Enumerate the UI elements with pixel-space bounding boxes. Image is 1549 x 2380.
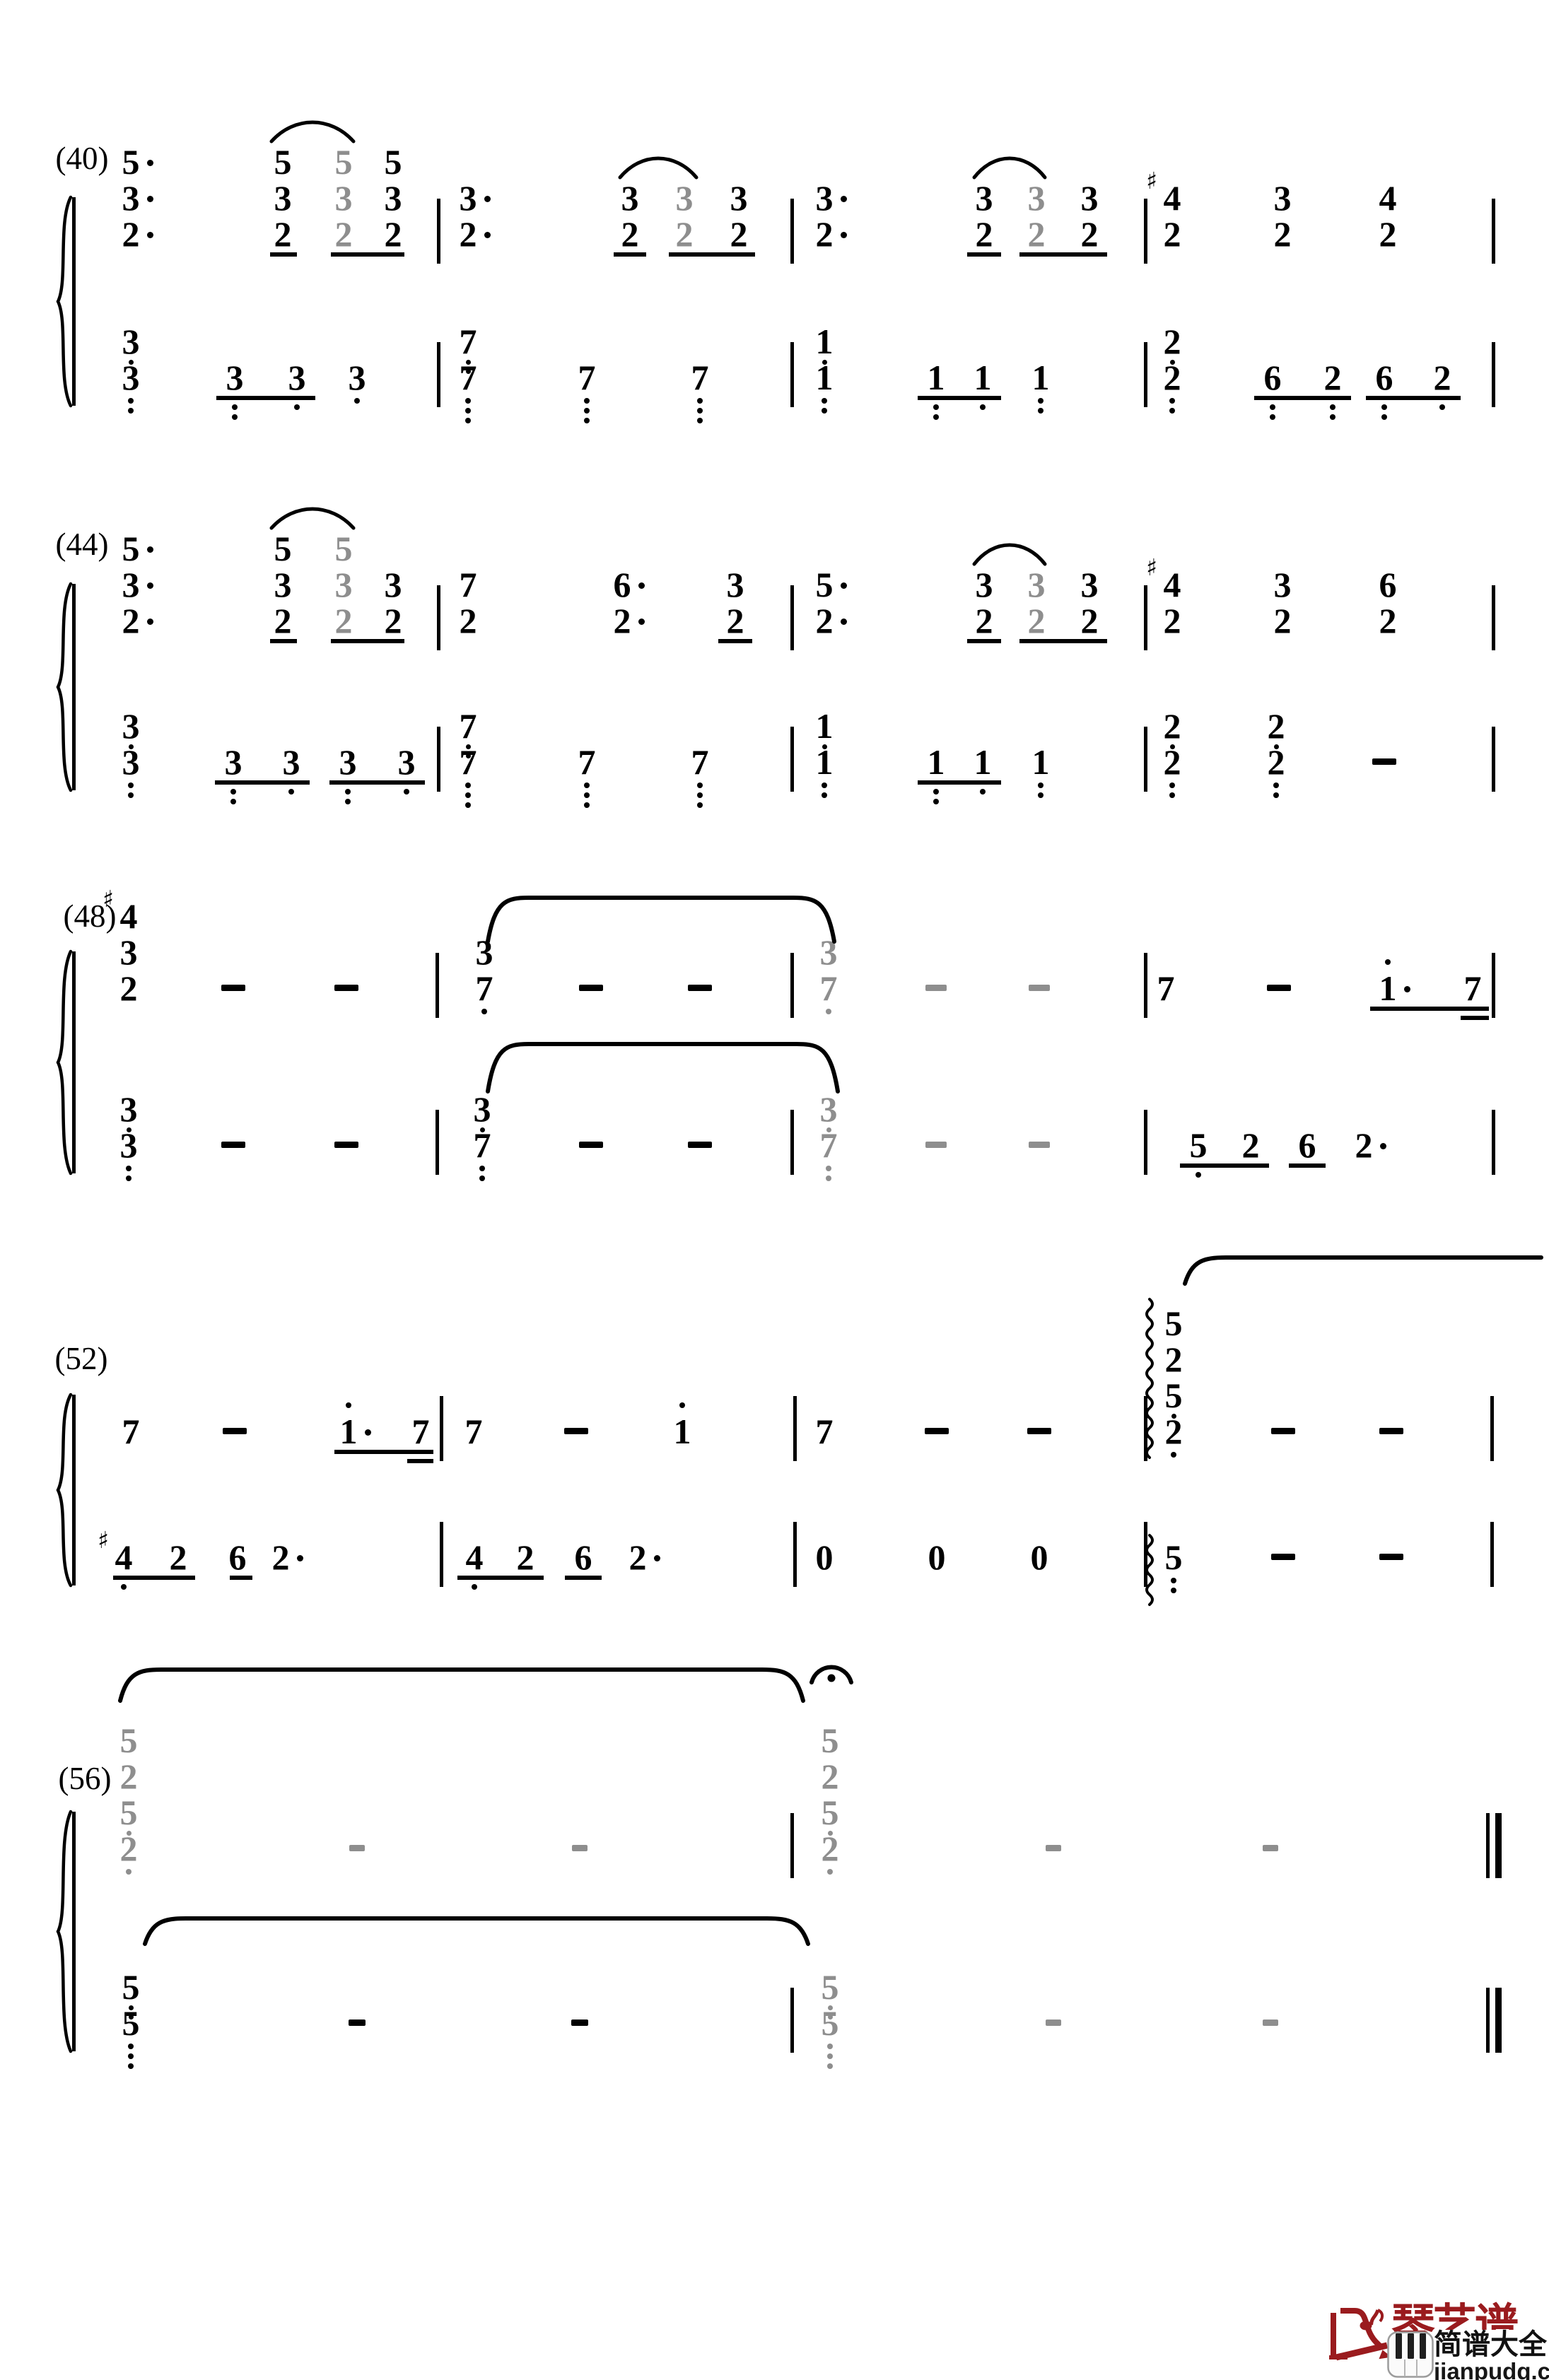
- held-note-dash: [349, 1845, 365, 1851]
- octave-dot: [841, 582, 847, 589]
- octave-dot: [827, 1869, 833, 1875]
- note-digit: 3: [318, 741, 378, 783]
- note-digit: 2: [1007, 599, 1066, 642]
- octave-dot: [147, 232, 153, 238]
- note-digit: 1: [1011, 356, 1070, 399]
- octave-dot: [1171, 1578, 1176, 1583]
- note-digit: 0: [795, 1536, 854, 1578]
- octave-dot: [1038, 408, 1044, 414]
- note-digit: 1: [953, 741, 1012, 783]
- octave-dot: [1330, 414, 1335, 420]
- octave-dot: [1381, 404, 1387, 410]
- final-barline: [1492, 727, 1495, 792]
- octave-dot: [128, 398, 134, 404]
- octave-dot: [1385, 959, 1391, 965]
- note-digit: 2: [253, 213, 312, 255]
- note-digit: 2: [954, 213, 1014, 255]
- note-digit: 2: [1413, 356, 1472, 399]
- note-digit: 2: [99, 1827, 158, 1870]
- held-note-dash: [688, 1142, 712, 1148]
- octave-dot: [1038, 398, 1044, 404]
- octave-dot: [479, 1166, 485, 1171]
- octave-dot: [1171, 1588, 1176, 1593]
- octave-dot: [230, 789, 236, 795]
- octave-dot: [288, 789, 294, 795]
- held-note-dash: [334, 985, 358, 991]
- note-digit: 2: [1253, 599, 1312, 642]
- octave-dot: [472, 1584, 477, 1590]
- held-note-dash: [564, 1428, 588, 1434]
- note-digit: 2: [1358, 599, 1418, 642]
- octave-dot: [584, 398, 590, 404]
- octave-dot: [128, 2044, 134, 2049]
- held-note-dash: [1029, 1142, 1050, 1148]
- note-digit: 2: [600, 213, 660, 255]
- held-note-dash: [1027, 1428, 1051, 1434]
- octave-dot: [128, 792, 134, 798]
- note-digit: 6: [1355, 356, 1414, 399]
- octave-dot: [1381, 414, 1387, 420]
- barline: [1144, 1110, 1147, 1175]
- octave-dot: [1439, 404, 1445, 410]
- octave-dot: [147, 546, 153, 553]
- held-note-dash: [1271, 1554, 1295, 1560]
- held-note-dash: [1379, 1428, 1403, 1434]
- octave-dot: [345, 799, 351, 804]
- octave-dot: [933, 789, 939, 795]
- note-digit: 2: [1246, 741, 1306, 783]
- note-digit: 2: [706, 599, 765, 642]
- barline: [436, 1110, 439, 1175]
- octave-dot: [1171, 1452, 1176, 1458]
- sharp-accidental: ♯: [1141, 553, 1162, 582]
- note-digit: 2: [363, 213, 423, 255]
- octave-dot: [404, 789, 409, 795]
- final-barline: [1490, 1522, 1494, 1587]
- barline: [790, 199, 794, 264]
- octave-dot: [1330, 404, 1335, 410]
- sixteenth-beam: [1461, 1016, 1489, 1020]
- barline: [790, 585, 794, 650]
- octave-dot: [465, 792, 471, 798]
- note-digit: 2: [1221, 1124, 1280, 1166]
- sixteenth-beam: [407, 1459, 433, 1463]
- octave-dot: [697, 408, 703, 414]
- system-start-line: [72, 1812, 76, 2051]
- held-note-dash: [1372, 758, 1396, 765]
- note-digit: 2: [1142, 213, 1202, 255]
- octave-dot: [822, 792, 827, 798]
- system-start-line: [72, 197, 76, 406]
- note-digit: 5: [800, 2002, 860, 2044]
- octave-dot: [980, 404, 986, 410]
- octave-dot: [346, 1402, 351, 1408]
- barline: [790, 342, 794, 407]
- held-note-dash: [925, 1142, 947, 1148]
- note-digit: 7: [670, 741, 730, 783]
- octave-dot: [465, 418, 471, 423]
- octave-dot: [826, 1166, 831, 1171]
- note-digit: 6: [554, 1536, 613, 1578]
- sharp-accidental: ♯: [93, 1526, 114, 1554]
- octave-dot: [584, 418, 590, 423]
- octave-dot: [827, 2053, 833, 2059]
- final-barline: [1490, 1396, 1494, 1461]
- note-digit: 1: [1011, 741, 1070, 783]
- octave-dot: [1270, 404, 1275, 410]
- octave-dot: [827, 2044, 833, 2049]
- octave-dot: [147, 619, 153, 625]
- piano-keys-icon: [1387, 2331, 1434, 2378]
- held-note-dash: [334, 1142, 358, 1148]
- octave-dot: [121, 1584, 127, 1590]
- held-note-dash: [572, 1845, 588, 1851]
- note-digit: 7: [1443, 967, 1502, 1009]
- octave-dot: [697, 782, 703, 788]
- octave-dot: [481, 1009, 487, 1014]
- note-digit: 7: [1136, 967, 1196, 1009]
- octave-dot: [584, 408, 590, 414]
- octave-dot: [1273, 792, 1279, 798]
- barline: [436, 953, 439, 1018]
- note-digit: 2: [253, 599, 312, 642]
- note-digit: 3: [101, 741, 160, 783]
- system-start-line: [72, 951, 76, 1173]
- note-digit: 2: [99, 967, 158, 1009]
- note-digit: 3: [267, 356, 327, 399]
- note-digit: 7: [670, 356, 730, 399]
- note-digit: 7: [557, 356, 616, 399]
- octave-dot: [479, 1176, 485, 1181]
- octave-dot: [584, 802, 590, 808]
- note-digit: 2: [148, 1536, 208, 1578]
- octave-dot: [147, 582, 153, 589]
- octave-dot: [654, 1555, 660, 1561]
- held-note-dash: [1271, 1428, 1295, 1434]
- note-digit: 3: [205, 356, 264, 399]
- held-note-dash: [221, 1142, 245, 1148]
- held-note-dash: [1263, 2020, 1278, 2026]
- octave-dot: [294, 404, 300, 410]
- note-digit: 7: [795, 1410, 854, 1453]
- octave-dot: [584, 782, 590, 788]
- octave-dot: [1380, 1143, 1386, 1149]
- octave-dot: [126, 1166, 131, 1171]
- system-start-line: [72, 1395, 76, 1585]
- octave-dot: [980, 789, 986, 795]
- octave-dot: [822, 408, 827, 414]
- octave-dot: [679, 1402, 685, 1408]
- note-digit: 6: [1278, 1124, 1337, 1166]
- note-digit: 2: [954, 599, 1014, 642]
- note-digit: 2: [1142, 741, 1202, 783]
- note-digit: 1: [953, 356, 1012, 399]
- held-note-dash: [221, 985, 245, 991]
- note-digit: 3: [101, 356, 160, 399]
- note-digit: 7: [455, 967, 514, 1009]
- watermark-site-url: jianpudq.com: [1434, 2360, 1549, 2380]
- note-digit: 2: [800, 1827, 860, 1870]
- note-digit: 7: [101, 1410, 160, 1453]
- octave-dot: [1270, 414, 1275, 420]
- note-digit: 2: [1142, 356, 1202, 399]
- octave-dot: [933, 414, 939, 420]
- final-barline-thick: [1495, 1988, 1502, 2053]
- note-digit: 7: [799, 1124, 858, 1166]
- barline: [790, 953, 794, 1018]
- note-digit: 5: [1169, 1124, 1228, 1166]
- barline: [790, 1988, 794, 2053]
- octave-dot: [465, 408, 471, 414]
- note-digit: 2: [496, 1536, 555, 1578]
- barline: [790, 727, 794, 792]
- final-barline: [1492, 1110, 1495, 1175]
- held-note-dash: [925, 985, 947, 991]
- note-digit: 2: [1303, 356, 1362, 399]
- octave-dot: [465, 782, 471, 788]
- octave-dot: [697, 398, 703, 404]
- octave-dot: [841, 232, 847, 238]
- piano-logo-icon: [1326, 2302, 1394, 2361]
- final-barline-thin: [1486, 1813, 1490, 1878]
- octave-dot: [1196, 1172, 1201, 1178]
- note-digit: 2: [363, 599, 423, 642]
- octave-dot: [147, 160, 153, 166]
- system-start-line: [72, 584, 76, 790]
- note-digit: 2: [1144, 1410, 1203, 1453]
- note-digit: 6: [1243, 356, 1302, 399]
- held-note-dash: [579, 1142, 603, 1148]
- octave-dot: [1404, 986, 1410, 992]
- note-digit: 1: [653, 1410, 712, 1453]
- octave-dot: [826, 1176, 831, 1181]
- octave-dot: [1038, 782, 1044, 788]
- barline: [790, 1813, 794, 1878]
- octave-dot: [465, 398, 471, 404]
- barline: [790, 1110, 794, 1175]
- note-digit: 2: [1007, 213, 1066, 255]
- octave-dot: [841, 196, 847, 202]
- final-barline: [1492, 585, 1495, 650]
- octave-dot: [638, 619, 645, 625]
- held-note-dash: [688, 985, 712, 991]
- measure-number: (52): [28, 1340, 134, 1378]
- held-note-dash: [223, 1428, 247, 1434]
- note-digit: 7: [438, 741, 498, 783]
- note-digit: 2: [655, 213, 714, 255]
- note-digit: 7: [438, 356, 498, 399]
- note-digit: 7: [391, 1410, 450, 1453]
- note-digit: 3: [377, 741, 436, 783]
- held-note-dash: [1046, 2020, 1061, 2026]
- watermark-site-block: 简谱大全 jianpudq.com: [1434, 2330, 1549, 2380]
- octave-dot: [1169, 782, 1175, 788]
- held-note-dash: [1267, 985, 1291, 991]
- octave-dot: [638, 582, 645, 589]
- held-note-dash: [925, 1428, 949, 1434]
- note-digit: 3: [262, 741, 321, 783]
- held-note-dash: [571, 2020, 588, 2026]
- octave-dot: [126, 1176, 131, 1181]
- note-digit: 3: [99, 1124, 158, 1166]
- note-digit: 0: [907, 1536, 966, 1578]
- held-note-dash: [1046, 1845, 1061, 1851]
- octave-dot: [345, 789, 351, 795]
- octave-dot: [1169, 398, 1175, 404]
- octave-dot: [128, 2063, 134, 2069]
- octave-dot: [297, 1555, 303, 1561]
- final-barline-thin: [1486, 1988, 1490, 2053]
- final-barline: [1492, 199, 1495, 264]
- note-digit: 7: [452, 1124, 512, 1166]
- note-digit: 2: [1060, 213, 1119, 255]
- note-digit: 2: [1253, 213, 1312, 255]
- note-digit: 3: [204, 741, 263, 783]
- sharp-accidental: ♯: [1141, 167, 1162, 195]
- octave-dot: [697, 418, 703, 423]
- note-digit: 1: [795, 356, 854, 399]
- held-note-dash: [579, 985, 603, 991]
- octave-dot: [827, 2063, 833, 2069]
- sharp-accidental: ♯: [98, 885, 119, 913]
- note-digit: 5: [1144, 1536, 1203, 1578]
- note-digit: 3: [327, 356, 387, 399]
- octave-dot: [365, 1429, 371, 1436]
- octave-dot: [232, 404, 238, 410]
- note-digit: 5: [101, 2002, 160, 2044]
- octave-dot: [697, 792, 703, 798]
- final-barline: [1492, 342, 1495, 407]
- octave-dot: [484, 232, 491, 238]
- note-digit: 2: [438, 599, 498, 642]
- octave-dot: [128, 782, 134, 788]
- octave-dot: [354, 398, 360, 404]
- note-digit: 7: [444, 1410, 503, 1453]
- held-note-dash: [349, 2020, 366, 2026]
- octave-dot: [465, 802, 471, 808]
- octave-dot: [126, 1869, 131, 1875]
- octave-dot: [697, 802, 703, 808]
- octave-dot: [933, 799, 939, 804]
- octave-dot: [1169, 408, 1175, 414]
- note-digit: 2: [709, 213, 768, 255]
- held-note-dash: [1263, 1845, 1278, 1851]
- note-digit: 2: [1358, 213, 1418, 255]
- octave-dot: [822, 782, 827, 788]
- octave-dot: [841, 619, 847, 625]
- octave-dot: [484, 196, 491, 202]
- final-barline-thick: [1495, 1813, 1502, 1878]
- note-digit: 2: [1142, 599, 1202, 642]
- held-note-dash: [1379, 1554, 1403, 1560]
- barline: [440, 1522, 443, 1587]
- note-digit: 2: [1060, 599, 1119, 642]
- note-digit: 0: [1010, 1536, 1069, 1578]
- octave-dot: [1273, 782, 1279, 788]
- octave-dot: [933, 404, 939, 410]
- note-digit: 7: [799, 967, 858, 1009]
- octave-dot: [232, 414, 238, 420]
- octave-dot: [128, 408, 134, 414]
- octave-dot: [822, 398, 827, 404]
- octave-dot: [1038, 792, 1044, 798]
- octave-dot: [147, 196, 153, 202]
- note-digit: 7: [557, 741, 616, 783]
- sheet-music-page: (40)53253253253232323232323232324♯232423…: [0, 0, 1549, 2380]
- watermark-site-name: 简谱大全: [1434, 2330, 1549, 2360]
- octave-dot: [128, 2053, 134, 2059]
- octave-dot: [826, 1009, 831, 1014]
- octave-dot: [230, 799, 236, 804]
- held-note-dash: [1029, 985, 1050, 991]
- note-digit: 1: [795, 741, 854, 783]
- octave-dot: [584, 792, 590, 798]
- octave-dot: [1169, 792, 1175, 798]
